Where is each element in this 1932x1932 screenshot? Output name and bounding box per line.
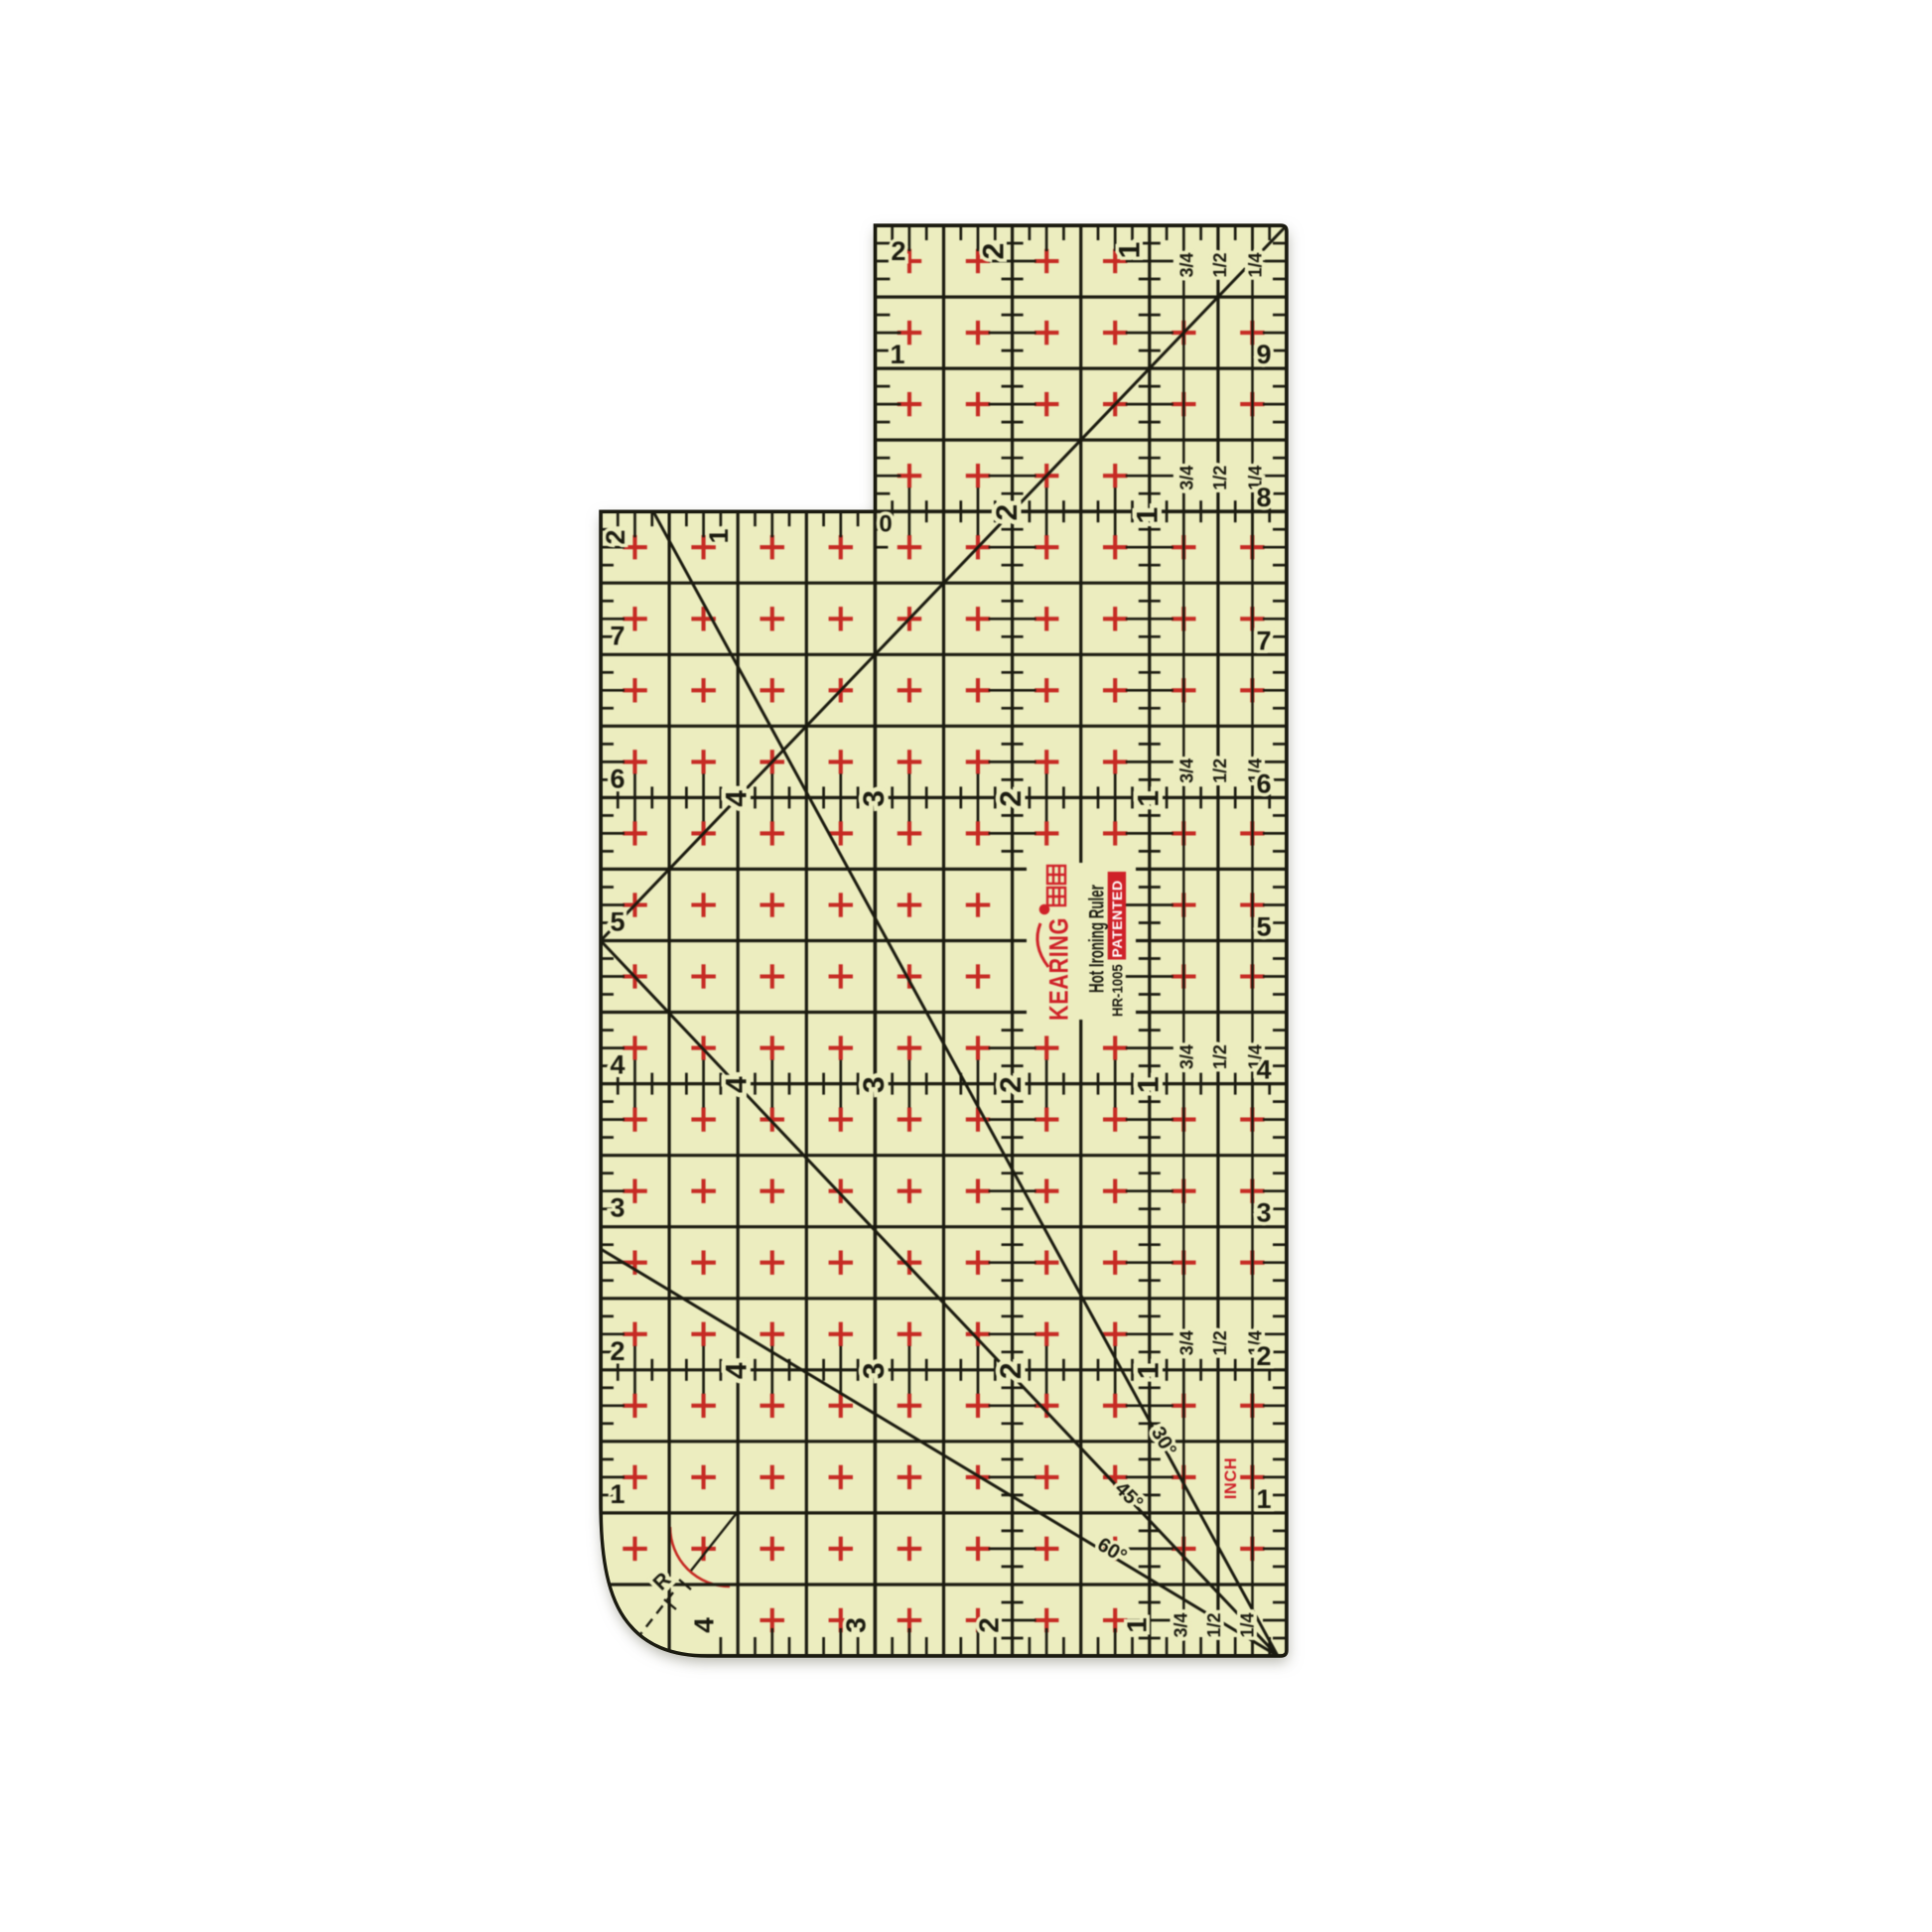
svg-text:3: 3: [1256, 1198, 1271, 1228]
svg-text:1: 1: [610, 1479, 624, 1509]
svg-text:Hot Ironing Ruler: Hot Ironing Ruler: [1084, 885, 1108, 993]
svg-text:1: 1: [1131, 507, 1164, 524]
svg-text:INCH: INCH: [1222, 1457, 1240, 1499]
svg-text:3: 3: [610, 1193, 624, 1223]
svg-text:4: 4: [610, 1050, 624, 1080]
svg-text:8: 8: [1256, 483, 1271, 512]
svg-text:4: 4: [689, 1617, 720, 1633]
svg-text:3: 3: [858, 790, 891, 807]
svg-text:1/4: 1/4: [1246, 252, 1266, 277]
svg-text:4: 4: [721, 1362, 754, 1379]
svg-text:1: 1: [1122, 1617, 1153, 1633]
svg-text:1: 1: [704, 528, 734, 543]
svg-text:3: 3: [858, 1076, 891, 1093]
svg-text:1/2: 1/2: [1204, 1612, 1224, 1637]
svg-text:3/4: 3/4: [1176, 1044, 1196, 1069]
svg-text:2: 2: [991, 504, 1024, 521]
svg-text:3/4: 3/4: [1176, 252, 1196, 277]
svg-text:6: 6: [610, 763, 624, 793]
svg-text:2: 2: [601, 529, 630, 544]
svg-text:4: 4: [721, 1076, 754, 1093]
svg-text:1/2: 1/2: [1210, 252, 1230, 277]
svg-text:3: 3: [841, 1617, 872, 1633]
svg-text:6: 6: [1256, 768, 1271, 798]
svg-text:1/2: 1/2: [1210, 1044, 1230, 1069]
svg-text:2: 2: [610, 1336, 624, 1366]
svg-text:KEARING: KEARING: [1044, 917, 1074, 1021]
svg-text:2: 2: [995, 1362, 1028, 1379]
svg-text:1/2: 1/2: [1210, 1330, 1230, 1355]
svg-text:HR-1005: HR-1005: [1109, 964, 1126, 1017]
svg-text:PATENTED: PATENTED: [1109, 880, 1125, 957]
svg-text:2: 2: [974, 1617, 1005, 1633]
svg-text:1: 1: [1256, 1484, 1271, 1514]
svg-text:4: 4: [1256, 1055, 1271, 1085]
svg-text:1: 1: [1132, 790, 1165, 807]
svg-text:1/2: 1/2: [1210, 466, 1230, 490]
svg-text:7: 7: [1256, 625, 1271, 655]
svg-text:2: 2: [1256, 1341, 1271, 1371]
svg-text:0: 0: [879, 511, 892, 538]
svg-text:3/4: 3/4: [1176, 466, 1196, 490]
svg-text:4: 4: [721, 790, 754, 807]
svg-text:7: 7: [610, 621, 624, 650]
svg-text:1/4: 1/4: [1238, 1612, 1258, 1637]
svg-text:2: 2: [978, 243, 1011, 260]
svg-text:5: 5: [610, 907, 624, 937]
svg-text:5: 5: [1256, 912, 1271, 942]
svg-text:9: 9: [1256, 340, 1271, 369]
svg-text:2: 2: [995, 790, 1028, 807]
svg-text:1: 1: [1132, 1362, 1165, 1379]
svg-text:1/2: 1/2: [1210, 759, 1230, 783]
svg-text:2: 2: [995, 1076, 1028, 1093]
svg-text:1: 1: [890, 340, 904, 369]
svg-text:3/4: 3/4: [1171, 1612, 1190, 1637]
svg-text:3/4: 3/4: [1176, 1330, 1196, 1355]
svg-text:3/4: 3/4: [1176, 759, 1196, 783]
svg-text:1: 1: [1114, 242, 1147, 259]
svg-text:1: 1: [1132, 1076, 1165, 1093]
svg-text:2: 2: [891, 236, 905, 266]
svg-text:3: 3: [858, 1362, 891, 1379]
